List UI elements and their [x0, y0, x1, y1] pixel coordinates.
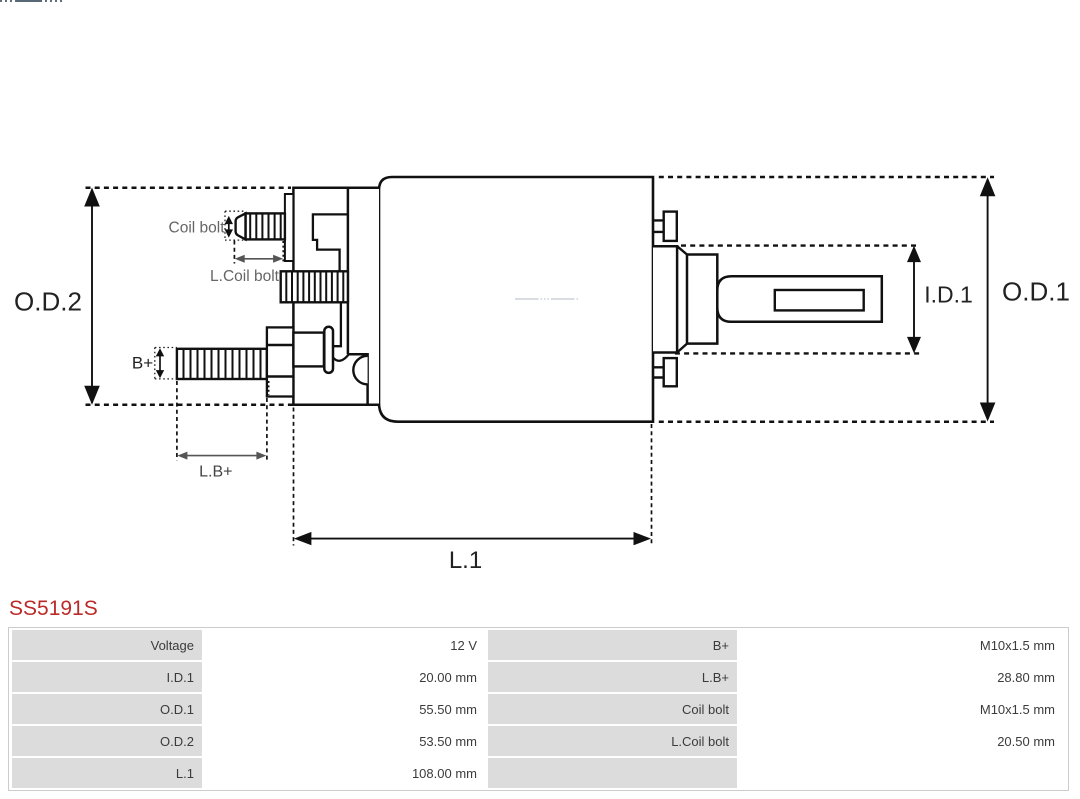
svg-text:Coil bolt: Coil bolt [169, 220, 226, 237]
svg-text:L.Coil bolt: L.Coil bolt [210, 268, 280, 285]
svg-text:L.1: L.1 [449, 547, 482, 574]
svg-text:B+: B+ [132, 353, 153, 372]
svg-text:O.D.1: O.D.1 [1002, 277, 1070, 307]
svg-text:I.D.1: I.D.1 [924, 282, 973, 308]
svg-text:O.D.2: O.D.2 [14, 287, 82, 317]
svg-text:L.B+: L.B+ [199, 464, 232, 481]
